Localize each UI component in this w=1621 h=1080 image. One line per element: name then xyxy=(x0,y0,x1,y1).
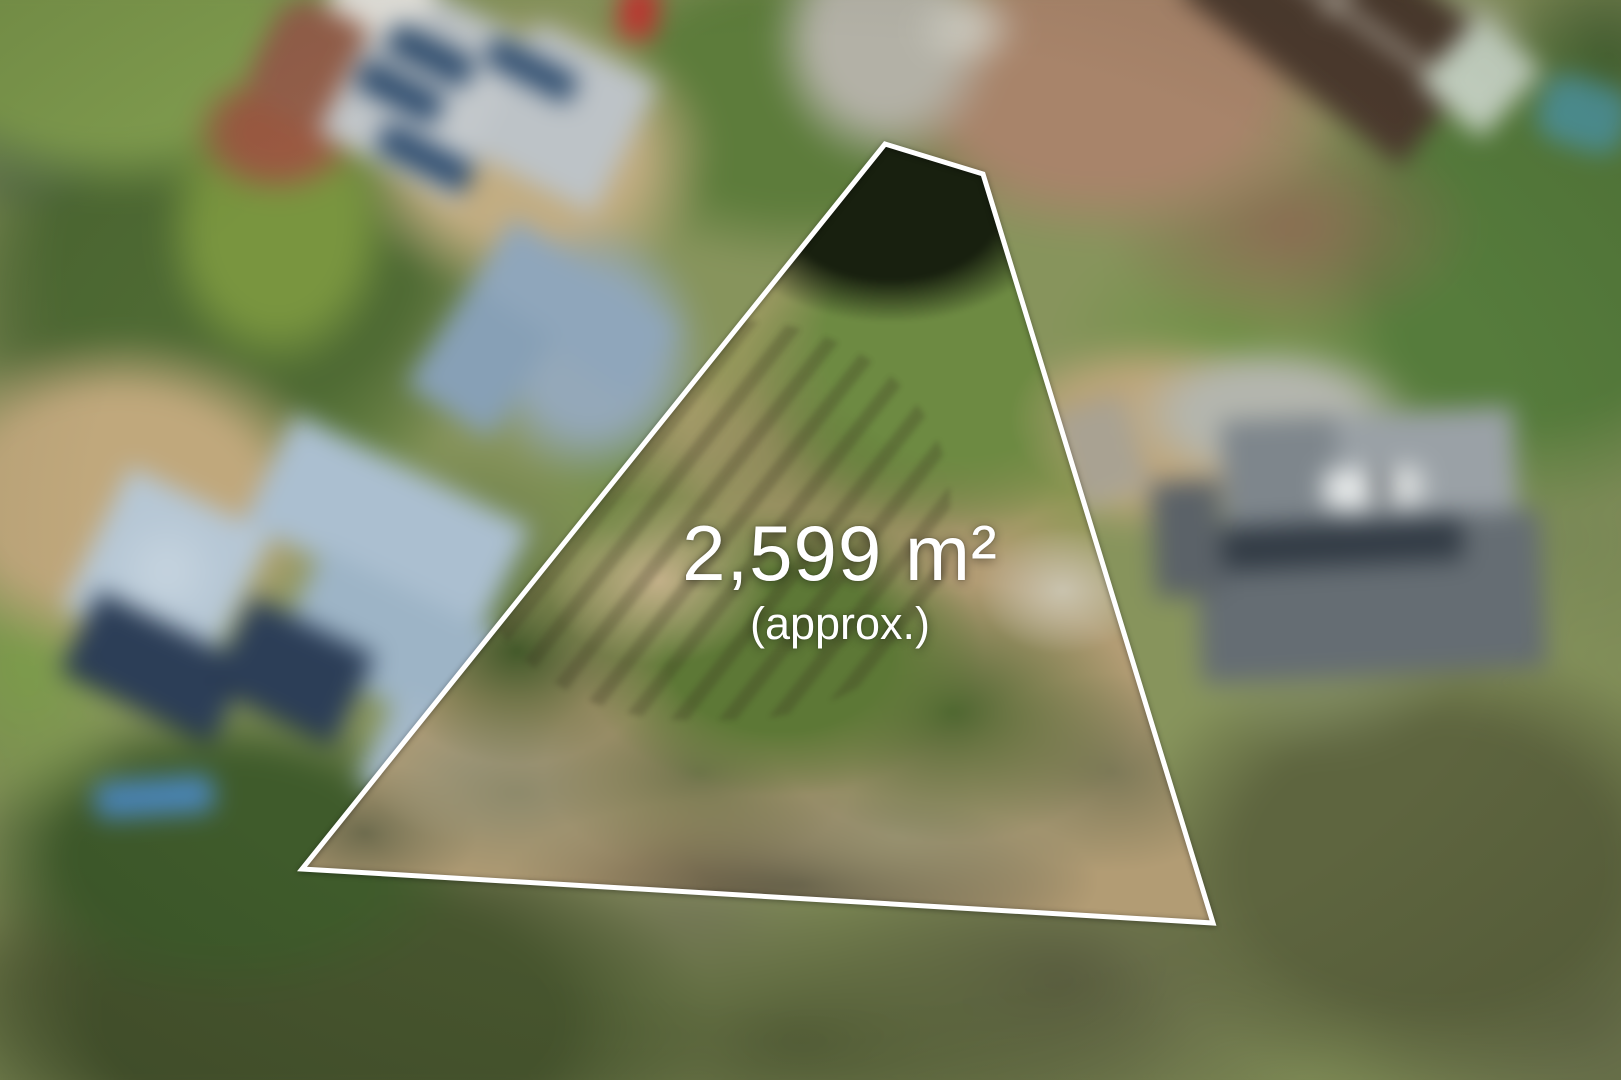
area-approx-note: (approx.) xyxy=(682,601,998,646)
aerial-photo: 2,599 m² (approx.) xyxy=(0,0,1621,1080)
area-label-group: 2,599 m² (approx.) xyxy=(682,514,998,646)
area-value: 2,599 m² xyxy=(682,514,998,592)
